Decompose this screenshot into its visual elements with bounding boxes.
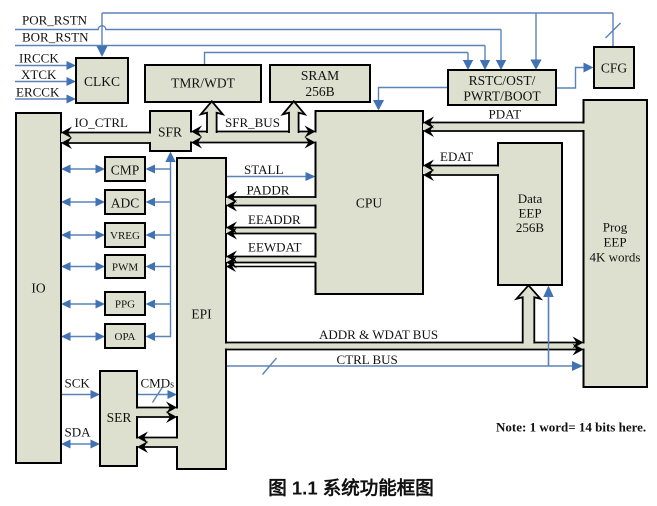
- svg-text:256B: 256B: [516, 220, 545, 235]
- svg-text:256B: 256B: [305, 84, 334, 99]
- svg-text:ERCCK: ERCCK: [16, 85, 60, 100]
- svg-text:EDAT: EDAT: [440, 149, 473, 164]
- svg-text:CPU: CPU: [356, 196, 383, 211]
- svg-text:PWRT/BOOT: PWRT/BOOT: [463, 89, 541, 104]
- svg-text:RSTC/OST/: RSTC/OST/: [469, 73, 536, 88]
- svg-text:IRCCK: IRCCK: [19, 51, 59, 66]
- svg-text:EPI: EPI: [191, 307, 212, 322]
- svg-text:Prog: Prog: [603, 220, 628, 235]
- svg-text:EEWDAT: EEWDAT: [248, 240, 301, 255]
- svg-text:SFR_BUS: SFR_BUS: [225, 115, 280, 130]
- svg-text:PPG: PPG: [115, 299, 135, 311]
- svg-text:ADC: ADC: [111, 196, 140, 211]
- svg-text:OPA: OPA: [115, 331, 136, 343]
- svg-text:EEP: EEP: [603, 235, 626, 250]
- svg-text:POR_RSTN: POR_RSTN: [22, 13, 88, 28]
- svg-text:ADDR & WDAT BUS: ADDR & WDAT BUS: [319, 327, 438, 342]
- svg-text:EEADDR: EEADDR: [248, 212, 301, 227]
- svg-text:SFR: SFR: [158, 125, 182, 140]
- svg-text:IO_CTRL: IO_CTRL: [75, 115, 129, 130]
- svg-text:CFG: CFG: [601, 61, 628, 76]
- svg-text:SCK: SCK: [65, 376, 91, 391]
- svg-text:CTRL BUS: CTRL BUS: [337, 352, 398, 367]
- svg-text:PDAT: PDAT: [489, 107, 522, 122]
- svg-text:SDA: SDA: [65, 425, 92, 440]
- svg-text:TMR/WDT: TMR/WDT: [171, 76, 235, 91]
- svg-text:XTCK: XTCK: [21, 67, 57, 82]
- svg-text:SER: SER: [107, 410, 132, 425]
- svg-text:Note: 1 word= 14 bits here.: Note: 1 word= 14 bits here.: [496, 420, 646, 435]
- svg-text:EEP: EEP: [518, 206, 541, 221]
- svg-text:PADDR: PADDR: [247, 183, 290, 198]
- svg-text:IO: IO: [31, 281, 45, 296]
- svg-text:PWM: PWM: [112, 262, 139, 274]
- svg-text:CMDs: CMDs: [141, 376, 175, 391]
- svg-text:VREG: VREG: [110, 230, 140, 242]
- svg-text:CMP: CMP: [111, 163, 140, 178]
- svg-text:CLKC: CLKC: [84, 74, 120, 89]
- svg-text:4K words: 4K words: [590, 250, 641, 265]
- svg-text:图 1.1 系统功能框图: 图 1.1 系统功能框图: [268, 478, 434, 499]
- svg-text:SRAM: SRAM: [301, 68, 339, 83]
- svg-text:Data: Data: [518, 191, 543, 206]
- svg-text:BOR_RSTN: BOR_RSTN: [22, 30, 89, 45]
- svg-text:STALL: STALL: [244, 162, 283, 177]
